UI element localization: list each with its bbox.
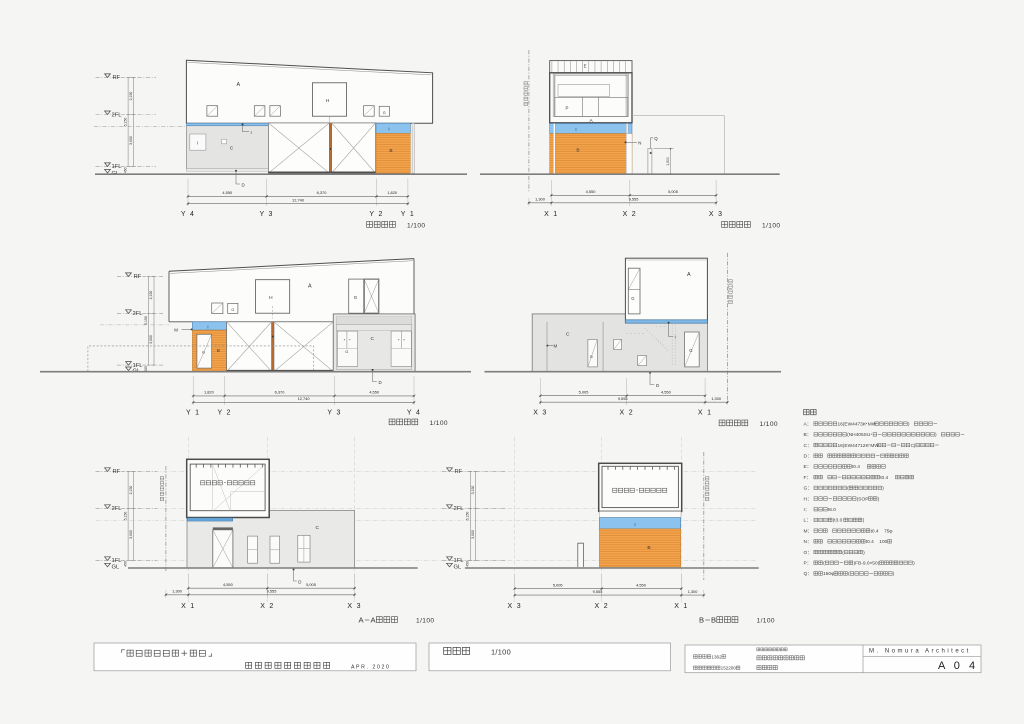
svg-text:2FL: 2FL (133, 311, 144, 317)
svg-text:450: 450 (124, 561, 128, 567)
svg-text:I：: I： (804, 507, 810, 513)
svg-text:G: G (631, 296, 634, 301)
svg-text:t0.4: t0.4 (880, 475, 888, 481)
svg-text:A: A (687, 272, 691, 278)
svg-text:3,000: 3,000 (149, 335, 153, 344)
svg-text:9,555: 9,555 (267, 589, 277, 594)
svg-text:C：: C： (804, 443, 812, 449)
svg-text:4,550: 4,550 (223, 582, 234, 587)
svg-text:E：: E： (804, 464, 812, 470)
svg-text:1/100: 1/100 (757, 618, 776, 625)
svg-text:G: G (689, 348, 692, 353)
svg-text:Y 1: Y 1 (186, 410, 200, 417)
svg-text:I: I (251, 130, 252, 135)
svg-text:X 1: X 1 (674, 603, 688, 610)
svg-text:5,150: 5,150 (144, 316, 148, 325)
svg-text:M：: M： (804, 528, 813, 534)
svg-text:1,500: 1,500 (666, 157, 670, 166)
svg-text:9,555: 9,555 (618, 396, 628, 401)
svg-text:2,150: 2,150 (129, 486, 133, 495)
svg-text:G: G (590, 354, 593, 359)
svg-text:X 2: X 2 (594, 603, 608, 610)
svg-text:C: C (316, 525, 320, 531)
svg-text:C: C (230, 146, 234, 152)
svg-text:5,005: 5,005 (668, 189, 678, 194)
svg-text:0: 0 (733, 666, 736, 671)
svg-text:MW: MW (868, 421, 877, 427)
svg-text:I: I (575, 127, 576, 132)
svg-text:X 3: X 3 (347, 603, 361, 610)
svg-text:450: 450 (466, 561, 470, 567)
svg-text:D: D (242, 183, 245, 188)
svg-text:4,550: 4,550 (586, 189, 597, 194)
svg-text:1,820: 1,820 (387, 190, 398, 195)
svg-text:3,150: 3,150 (471, 486, 475, 495)
svg-text:B: B (647, 545, 650, 551)
svg-text:I: I (388, 127, 389, 132)
svg-text:1/100: 1/100 (491, 648, 511, 657)
svg-text:1/100: 1/100 (760, 421, 779, 428)
svg-text:(t3.0: (t3.0 (833, 518, 843, 524)
svg-text:B: B (711, 616, 716, 625)
svg-text:Y 4: Y 4 (181, 211, 195, 218)
svg-text:A: A (237, 82, 241, 88)
svg-text:3,000: 3,000 (129, 136, 133, 145)
svg-text:APR. 2020: APR. 2020 (351, 664, 391, 670)
svg-text:X 1: X 1 (181, 603, 195, 610)
svg-text:4,550: 4,550 (222, 190, 233, 195)
svg-text:N: N (638, 140, 641, 145)
svg-text:1,300: 1,300 (172, 589, 183, 594)
svg-text:I: I (207, 325, 208, 330)
svg-text:t0.4: t0.4 (866, 539, 874, 545)
svg-text:C: C (371, 336, 375, 342)
svg-text:B: B (576, 148, 579, 154)
svg-text:Q：: Q： (804, 571, 813, 577)
svg-text:1/100: 1/100 (430, 420, 449, 427)
svg-text:X 1: X 1 (698, 410, 712, 417)
svg-text:X 2: X 2 (260, 603, 274, 610)
svg-text:G: G (345, 349, 348, 354)
svg-text:5,150: 5,150 (124, 118, 128, 127)
svg-text:6,370: 6,370 (317, 190, 328, 195)
svg-text:1,820: 1,820 (204, 390, 215, 395)
svg-text:5,005: 5,005 (553, 582, 563, 587)
svg-text:A：: A： (804, 421, 812, 427)
svg-text:I: I (197, 141, 198, 146)
svg-text:100: 100 (879, 539, 887, 545)
svg-text:G: G (354, 295, 358, 300)
svg-text:RF: RF (455, 469, 463, 475)
svg-text:)FB-9.0×50: )FB-9.0×50 (854, 561, 878, 567)
svg-text:M. Nomura Architect: M. Nomura Architect (869, 649, 971, 655)
svg-text:B: B (217, 348, 220, 353)
svg-text:Y 4: Y 4 (407, 410, 421, 417)
svg-text:1/100: 1/100 (407, 222, 426, 229)
svg-text:5,150: 5,150 (124, 512, 128, 521)
svg-text:6,370: 6,370 (275, 390, 286, 395)
svg-text:X 1: X 1 (544, 211, 558, 218)
svg-text:D: D (656, 383, 659, 388)
svg-text:3,000: 3,000 (129, 530, 133, 539)
svg-text:2,150: 2,150 (149, 291, 153, 300)
svg-text:12,740: 12,740 (292, 197, 305, 202)
svg-text:G: G (202, 350, 205, 355)
svg-text:3,000: 3,000 (471, 530, 475, 539)
svg-text:9,555: 9,555 (629, 197, 639, 202)
svg-text:G: G (383, 111, 386, 115)
svg-text:1/100: 1/100 (416, 618, 435, 625)
svg-text:L：: L： (804, 518, 811, 524)
svg-text:t0.4: t0.4 (852, 464, 860, 470)
svg-text:t6.0: t6.0 (828, 507, 836, 513)
svg-text:I: I (634, 522, 635, 527)
svg-text:1/100: 1/100 (762, 222, 781, 229)
svg-text:P: P (566, 105, 569, 110)
svg-text:H：: H： (804, 496, 812, 502)
svg-text:(NH405SU: (NH405SU (847, 432, 871, 438)
svg-text:150φ: 150φ (823, 571, 834, 577)
svg-text:M: M (554, 343, 558, 348)
svg-text:RF: RF (113, 75, 121, 81)
svg-text:X 2: X 2 (619, 410, 633, 417)
svg-text:B: B (389, 148, 392, 154)
svg-text:1,300: 1,300 (688, 589, 699, 594)
svg-text:t0.4: t0.4 (871, 528, 879, 534)
svg-text:12,740: 12,740 (298, 396, 311, 401)
svg-text:O：: O： (804, 550, 813, 556)
svg-text:GL: GL (112, 565, 121, 571)
svg-text:RF: RF (134, 274, 142, 280)
svg-text:D: D (298, 580, 301, 585)
svg-text:2: 2 (719, 654, 722, 659)
svg-text:X 3: X 3 (709, 211, 723, 218)
svg-text:H: H (269, 295, 273, 301)
svg-text:2FL: 2FL (454, 506, 465, 512)
svg-text:2FL: 2FL (112, 506, 123, 512)
svg-text:H: H (326, 98, 330, 104)
svg-text:(EW44712K: (EW44712K (843, 443, 870, 449)
svg-text:5,005: 5,005 (579, 390, 589, 395)
svg-text:RF: RF (113, 469, 121, 475)
svg-text:1FL: 1FL (112, 558, 123, 564)
svg-text:G：: G： (804, 486, 813, 492)
svg-text:(SOP: (SOP (857, 496, 869, 502)
svg-text:GL: GL (454, 565, 463, 571)
svg-text:X 2: X 2 (623, 211, 637, 218)
svg-text:Y 2: Y 2 (217, 410, 231, 417)
svg-text:N：: N： (804, 539, 812, 545)
svg-text:1,300: 1,300 (711, 396, 722, 401)
svg-text:B：: B： (804, 432, 812, 438)
svg-text:B: B (699, 616, 704, 625)
svg-text:2,150: 2,150 (129, 92, 133, 101)
svg-text:75φ: 75φ (884, 528, 892, 534)
svg-text:Y 2: Y 2 (369, 211, 383, 218)
svg-text:A: A (308, 284, 312, 290)
svg-text:G: G (231, 308, 234, 312)
svg-text:4,550: 4,550 (369, 390, 380, 395)
svg-text:6,150: 6,150 (466, 512, 470, 521)
svg-text:Y 1: Y 1 (401, 211, 415, 218)
svg-text:X 3: X 3 (533, 410, 547, 417)
svg-text:450: 450 (124, 167, 128, 173)
svg-text:D：: D： (804, 454, 812, 460)
svg-text:A 0 4: A 0 4 (938, 660, 978, 672)
svg-text:4,550: 4,550 (661, 390, 672, 395)
svg-text:M: M (174, 328, 178, 333)
svg-text:Y 3: Y 3 (259, 211, 273, 218)
svg-text:4,550: 4,550 (636, 582, 647, 587)
svg-text:C: C (566, 332, 570, 338)
svg-text:1,300: 1,300 (535, 197, 546, 202)
svg-text:2FL: 2FL (112, 112, 123, 118)
svg-text:P：: P： (804, 561, 812, 567)
svg-text:X 3: X 3 (507, 603, 521, 610)
svg-text:I: I (675, 334, 676, 339)
svg-text:9,555: 9,555 (593, 589, 603, 594)
svg-text:F：: F： (804, 475, 812, 481)
svg-text:Q: Q (654, 136, 658, 141)
svg-text:D: D (379, 380, 382, 385)
svg-text:5,005: 5,005 (306, 582, 316, 587)
svg-text:Y 3: Y 3 (327, 410, 341, 417)
svg-text:E: E (584, 64, 587, 69)
svg-text:MW: MW (870, 443, 879, 449)
svg-text:1FL: 1FL (454, 558, 465, 564)
svg-text:16(EW4473K: 16(EW4473K (838, 421, 867, 427)
svg-text:1FL: 1FL (112, 164, 123, 170)
